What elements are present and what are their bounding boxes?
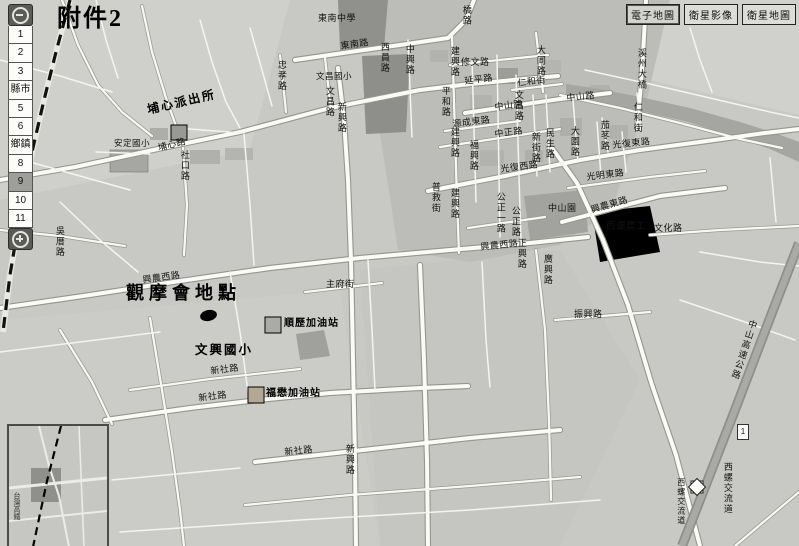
school-block [296, 330, 330, 360]
map-type-button-3[interactable]: 衛星地圖 [742, 4, 796, 25]
zoom-level-4[interactable]: 縣市 [8, 81, 33, 99]
zoom-level-2[interactable]: 2 [8, 44, 33, 62]
zoom-level-8[interactable]: 8 [8, 155, 33, 173]
zoom-level-5[interactable]: 5 [8, 100, 33, 118]
map-type-toolbar: 電子地圖衛星影像衛星地圖 [626, 4, 796, 25]
police-station-building [171, 125, 187, 140]
highway-1-shield: 1 [737, 424, 749, 440]
magnifier-minus-icon [12, 7, 29, 24]
zoom-level-6[interactable]: 6 [8, 118, 33, 136]
zoom-level-9[interactable]: 9 [8, 173, 33, 191]
gas-station-box [265, 317, 281, 333]
inset-graphics [9, 426, 107, 546]
inset-hsr-label: 台灣高鐵 [11, 492, 21, 520]
zoom-out-button[interactable] [8, 4, 33, 26]
zoom-levels: 123縣市56鄉鎮891011 [8, 26, 33, 228]
map-graphics [0, 0, 799, 546]
zoom-level-10[interactable]: 10 [8, 192, 33, 210]
map-type-button-1[interactable]: 電子地圖 [626, 4, 680, 25]
interchange-star-icon [689, 479, 706, 496]
zoom-level-1[interactable]: 1 [8, 26, 33, 44]
map-type-button-2[interactable]: 衛星影像 [684, 4, 738, 25]
zoom-level-11[interactable]: 11 [8, 210, 33, 228]
zoom-level-7[interactable]: 鄉鎮 [8, 136, 33, 154]
overview-inset-map[interactable]: 台灣高鐵 [7, 424, 109, 546]
zoom-level-3[interactable]: 3 [8, 63, 33, 81]
gas-station-box [248, 387, 264, 403]
school-block [338, 0, 388, 50]
zoom-control: 123縣市56鄉鎮891011 [8, 4, 33, 250]
map-application: 附件2埔心派出所觀摩會地點文興國小順歷加油站福懋加油站安定國小東南中學西螺農工文… [0, 0, 799, 546]
zoom-in-button[interactable] [8, 228, 33, 250]
magnifier-plus-icon [12, 231, 29, 248]
map-viewport[interactable]: 附件2埔心派出所觀摩會地點文興國小順歷加油站福懋加油站安定國小東南中學西螺農工文… [0, 0, 799, 546]
